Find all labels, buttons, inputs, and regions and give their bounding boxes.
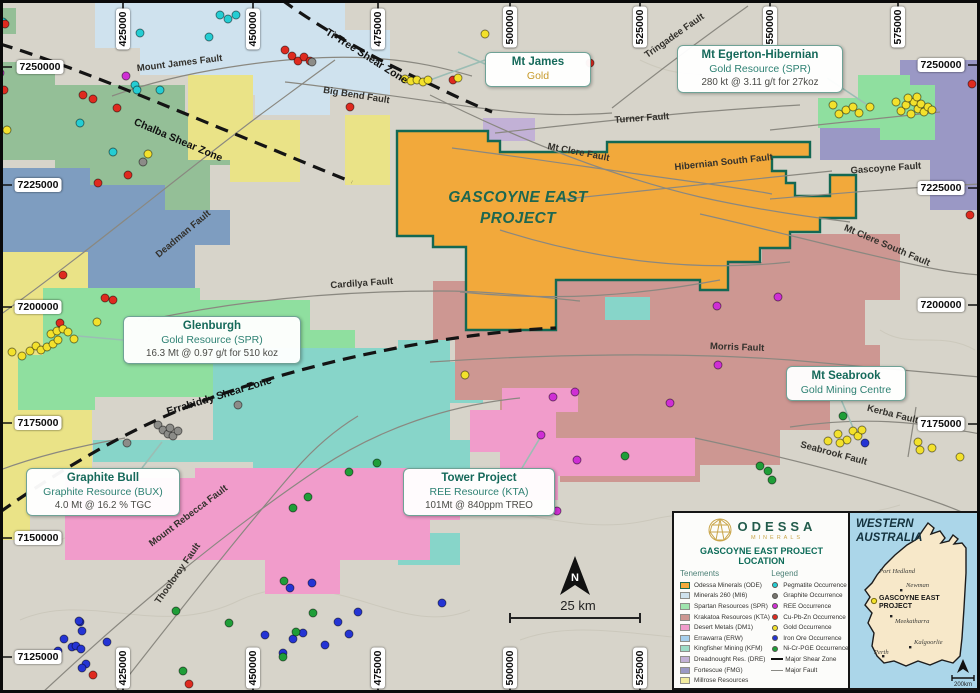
coord-label-right: 7200000 (918, 298, 965, 312)
coord-label-right: 7225000 (918, 181, 965, 195)
tenement-label: Desert Metals (DM1) (694, 624, 753, 631)
coord-label-bottom: 475000 (371, 647, 385, 688)
legend-header: Legend (771, 569, 843, 578)
odessa-logo: ODESSA MINERALS (680, 517, 843, 543)
inset-scale-bar (952, 675, 974, 681)
callout-egerton: Mt Egerton-Hibernian Gold Resource (SPR)… (677, 45, 843, 93)
city-label: Meekatharra (894, 618, 930, 625)
project-title-line2: PROJECT (443, 209, 593, 230)
tenement-swatch (680, 656, 690, 663)
tenement-swatch (680, 624, 690, 631)
coord-label-right: 7250000 (918, 58, 965, 72)
callout-title: Mt Egerton-Hibernian (684, 48, 836, 63)
occurrence-row: Cu-Pb-Zn Occurrence (771, 612, 843, 623)
occurrence-dot (772, 614, 778, 620)
tenement-label: Kingfisher Mining (KFM) (694, 645, 763, 652)
callout-detail: 280 kt @ 3.11 g/t for 27koz (684, 77, 836, 90)
coord-label-top: 425000 (116, 8, 130, 49)
city-label: Perth (873, 649, 889, 656)
coord-label-left: 7125000 (15, 650, 62, 664)
map-screenshot: Mount James Fault Big Bend Fault Deadman… (0, 0, 980, 693)
gem-icon (707, 517, 733, 543)
callout-tower: Tower Project REE Resource (KTA) 101Mt @… (403, 468, 555, 516)
tenement-swatch (680, 677, 690, 684)
coord-label-left: 7225000 (15, 178, 62, 192)
callout-detail: 16.3 Mt @ 0.97 g/t for 510 koz (130, 348, 294, 361)
coord-label-top: 475000 (371, 8, 385, 49)
tenement-row: Odessa Minerals (ODE) (680, 580, 771, 591)
callout-title: Graphite Bull (33, 471, 173, 486)
occurrence-label: Ni-Cr-PGE Occurrence (783, 645, 848, 652)
svg-text:PROJECT: PROJECT (879, 603, 913, 610)
occurrence-label: Iron Ore Occurrence (783, 635, 841, 642)
callout-subtitle: Gold Resource (SPR) (130, 334, 294, 348)
legend-line-row: Major Shear Zone (771, 654, 843, 665)
inset-title-line2: AUSTRALIA (856, 531, 922, 545)
inset-title-line1: WESTERN (856, 517, 922, 531)
occurrence-row: Gold Occurrence (771, 622, 843, 633)
project-title-line1: GASCOYNE EAST (443, 188, 593, 209)
legend-line-label: Major Shear Zone (785, 656, 836, 663)
occurrence-dot (772, 603, 778, 609)
inset-scale-label: 200km (954, 682, 972, 688)
occurrence-dot (772, 582, 778, 588)
coord-label-left: 7200000 (15, 300, 62, 314)
callout-title: Glenburgh (130, 319, 294, 334)
occurrence-row: Graphite Occurrence (771, 591, 843, 602)
occurrence-row: Ni-Cr-PGE Occurrence (771, 644, 843, 655)
coord-label-bottom: 425000 (116, 647, 130, 688)
tenement-millrose-2 (345, 115, 390, 185)
legend-box: ODESSA MINERALS GASCOYNE EAST PROJECT LO… (674, 513, 848, 688)
callout-graphite-bull: Graphite Bull Graphite Resource (BUX) 4.… (26, 468, 180, 516)
shear-zone-symbol (771, 658, 783, 660)
occurrence-dot (772, 625, 778, 631)
legend-line-label: Major Fault (785, 667, 817, 674)
occurrence-label: Graphite Occurrence (783, 592, 842, 599)
tenement-row: Errawarra (ERW) (680, 633, 771, 644)
tenement-row: Spartan Resources (SPR) (680, 601, 771, 612)
city-label: Port Hedland (878, 568, 916, 575)
tenements-column: Tenements Odessa Minerals (ODE) Minerals… (680, 568, 771, 686)
coord-label-top: 550000 (763, 6, 777, 47)
occurrence-dot (772, 646, 778, 652)
coord-label-bottom: 525000 (633, 647, 647, 688)
fault-label: Morris Fault (710, 341, 766, 354)
coord-label-top: 575000 (891, 6, 905, 47)
tenement-swatch (680, 667, 690, 674)
callout-subtitle: Gold Mining Centre (793, 384, 899, 398)
tenements-header: Tenements (680, 569, 771, 578)
wa-inset-map: WESTERN AUSTRALIA Port Hedland Newman Me… (848, 513, 978, 688)
city-label: Newman (905, 582, 930, 589)
tenement-row: Minerals 260 (MI6) (680, 591, 771, 602)
callout-title: Tower Project (410, 471, 548, 486)
tenement-row: Fortescue (FMG) (680, 665, 771, 676)
coord-label-left: 7250000 (17, 60, 64, 74)
callout-mt-james: Mt James Gold (485, 52, 591, 87)
tenement-row: Krakatoa Resources (KTA) (680, 612, 771, 623)
occurrence-label: Cu-Pb-Zn Occurrence (783, 614, 846, 621)
tenement-swatch (680, 582, 690, 589)
coord-label-top: 450000 (246, 8, 260, 49)
tenement-label: Odessa Minerals (ODE) (694, 582, 762, 589)
legend-panel: ODESSA MINERALS GASCOYNE EAST PROJECT LO… (672, 511, 980, 690)
legend-line-row: Major Fault (771, 665, 843, 676)
callout-glenburgh: Glenburgh Gold Resource (SPR) 16.3 Mt @ … (123, 316, 301, 364)
coord-label-right: 7175000 (918, 417, 965, 431)
callout-subtitle: Graphite Resource (BUX) (33, 486, 173, 500)
tenement-label: Errawarra (ERW) (694, 635, 743, 642)
tenement-label: Minerals 260 (MI6) (694, 592, 747, 599)
tenement-swatch (680, 614, 690, 621)
tenement-swatch (680, 645, 690, 652)
coord-label-top: 525000 (633, 6, 647, 47)
occurrence-row: Pegmatite Occurrence (771, 580, 843, 591)
tenement-row: Millrose Resources (680, 675, 771, 686)
callout-detail: 4.0 Mt @ 16.2 % TGC (33, 500, 173, 513)
tenement-label: Fortescue (FMG) (694, 667, 743, 674)
tenement-row: Kingfisher Mining (KFM) (680, 644, 771, 655)
coord-label-bottom: 500000 (503, 647, 517, 688)
tenement-label: Spartan Resources (SPR) (694, 603, 768, 610)
city-label: Kalgoorlie (913, 639, 943, 646)
logo-subtext: MINERALS (751, 535, 803, 541)
svg-text:GASCOYNE EAST: GASCOYNE EAST (879, 595, 940, 602)
tenement-swatch (680, 592, 690, 599)
callout-mt-seabrook: Mt Seabrook Gold Mining Centre (786, 366, 906, 401)
tenement-row: Dreadnought Res. (DRE) (680, 654, 771, 665)
tenement-label: Krakatoa Resources (KTA) (694, 614, 770, 621)
tenement-row: Desert Metals (DM1) (680, 622, 771, 633)
occurrence-label: REE Occurrence (783, 603, 831, 610)
occurrence-dot (772, 635, 778, 641)
legend-column: Legend Pegmatite Occurrence Graphite Occ… (771, 568, 843, 686)
callout-subtitle: Gold Resource (SPR) (684, 63, 836, 77)
tenement-swatch (680, 635, 690, 642)
callout-title: Mt Seabrook (793, 369, 899, 384)
occurrence-row: Iron Ore Occurrence (771, 633, 843, 644)
tenement-label: Millrose Resources (694, 677, 748, 684)
inset-project-dot (871, 598, 876, 603)
occurrence-label: Pegmatite Occurrence (783, 582, 847, 589)
project-title: GASCOYNE EAST PROJECT (443, 188, 593, 230)
coord-label-bottom: 450000 (246, 647, 260, 688)
inset-title: WESTERN AUSTRALIA (856, 517, 922, 546)
occurrence-label: Gold Occurrence (783, 624, 831, 631)
callout-subtitle: REE Resource (KTA) (410, 486, 548, 500)
svg-text:N: N (571, 572, 579, 584)
panel-title: GASCOYNE EAST PROJECT LOCATION (680, 546, 843, 566)
callout-title: Mt James (492, 55, 584, 70)
logo-wordmark: ODESSA (738, 519, 817, 534)
tenement-label: Dreadnought Res. (DRE) (694, 656, 765, 663)
coord-label-left: 7175000 (15, 416, 62, 430)
scale-label: 25 km (543, 598, 613, 613)
occurrence-dot (772, 593, 778, 599)
occurrence-row: REE Occurrence (771, 601, 843, 612)
coord-label-top: 500000 (503, 6, 517, 47)
coord-label-left: 7150000 (15, 531, 62, 545)
fault-symbol (771, 670, 783, 671)
callout-detail: Gold (492, 70, 584, 84)
callout-detail: 101Mt @ 840ppm TREO (410, 500, 548, 513)
tenement-swatch (680, 603, 690, 610)
inset-north-arrow (957, 659, 969, 673)
